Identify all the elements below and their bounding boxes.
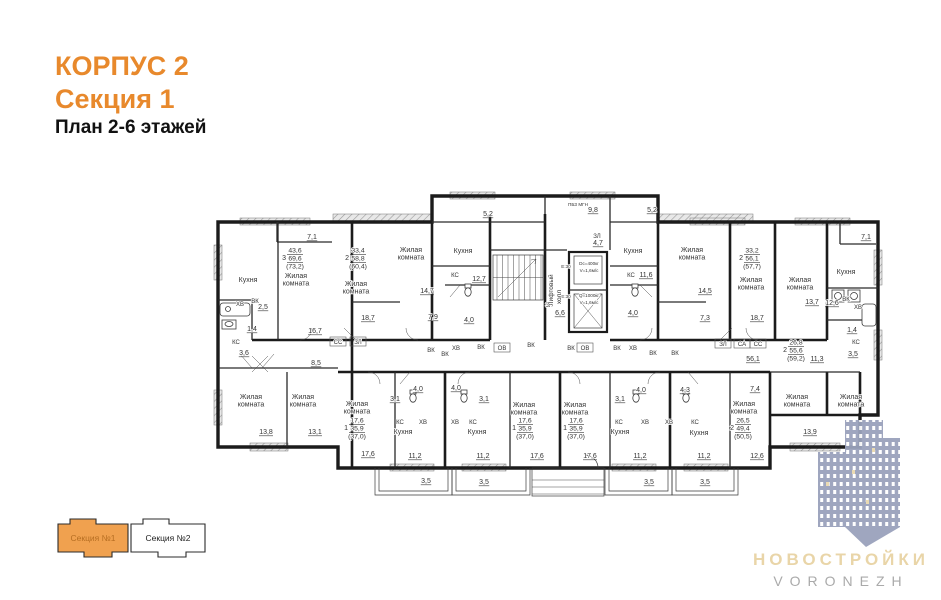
plan-label: 7,4 bbox=[750, 386, 760, 393]
plan-label: V=1,6м/с bbox=[580, 268, 600, 273]
plan-label: 18,7 bbox=[750, 315, 764, 322]
plan-label: 11,2 bbox=[476, 453, 489, 460]
plan-label: Кухня bbox=[624, 248, 643, 255]
plan-label: Кухня bbox=[611, 429, 630, 436]
plan-label: ХВ bbox=[641, 420, 649, 426]
plan-label: КС bbox=[396, 420, 404, 426]
plan-label: 7,9 bbox=[428, 314, 438, 321]
plan-label: 13,1 bbox=[308, 429, 322, 436]
plan-label: 14,7 bbox=[420, 288, 434, 295]
svg-text:(50,5): (50,5) bbox=[734, 434, 752, 441]
legend-section-2[interactable]: Секция №2 bbox=[131, 519, 205, 557]
plan-label: Q=1000кг bbox=[579, 293, 599, 298]
section-title: Секция 1 bbox=[55, 84, 175, 114]
washer-icon bbox=[848, 290, 860, 302]
plan-label: 9,8 bbox=[588, 207, 598, 214]
plan-label: Жилаякомната bbox=[731, 401, 758, 416]
plan-label: 4,7 bbox=[593, 240, 603, 247]
plan-label: ВК bbox=[649, 351, 657, 357]
plan-label: Кухня bbox=[239, 277, 258, 284]
staircase bbox=[493, 255, 543, 300]
plan-label: 11,2 bbox=[697, 453, 710, 460]
plan-label: 11,3 bbox=[810, 356, 823, 363]
logo-subtitle: VORONEZH bbox=[773, 573, 908, 589]
plan-label: 1,4 bbox=[247, 326, 257, 333]
plan-label: 5,2 bbox=[647, 207, 657, 214]
plan-label: 5,2 bbox=[483, 211, 493, 218]
page: КОРПУС 2 Секция 1 План 2-6 этажей bbox=[0, 0, 941, 600]
plan-label: КС bbox=[469, 420, 477, 426]
plan-label: 4,0 bbox=[413, 386, 423, 393]
plan-label: ОВ bbox=[498, 346, 507, 352]
plan-label: ХВ bbox=[629, 346, 637, 352]
svg-text:(37,0): (37,0) bbox=[348, 434, 366, 441]
plan-label: Жилаякомната bbox=[562, 402, 589, 417]
plan-label: ХВ bbox=[665, 420, 673, 426]
plan-label: СС bbox=[754, 342, 763, 348]
building-title: КОРПУС 2 bbox=[55, 51, 189, 81]
plan-label: 6,6 bbox=[555, 310, 565, 317]
svg-text:3: 3 bbox=[282, 255, 286, 262]
plan-label: Жилаякомната bbox=[343, 281, 370, 296]
plan-label: Кухня bbox=[468, 429, 487, 436]
svg-text:17,6: 17,6 bbox=[518, 418, 531, 425]
legend-section-1[interactable]: Секция №1 bbox=[58, 519, 128, 557]
plan-label: ВК bbox=[842, 297, 850, 303]
plan-label: ВК bbox=[441, 352, 449, 358]
plan-label: ХВ bbox=[451, 420, 459, 426]
logo-building-icon bbox=[818, 420, 900, 547]
plan-label: холл bbox=[556, 290, 563, 304]
plan-label: Жилаякомната bbox=[511, 402, 538, 417]
sink-icon bbox=[222, 320, 236, 329]
plan-label: ПБЗ МГН bbox=[568, 202, 588, 207]
plan-label: 14,5 bbox=[698, 288, 712, 295]
plan-label: 2,5 bbox=[258, 304, 268, 311]
plan-label: 4,0 bbox=[464, 317, 474, 324]
plan-label: Лифтовый bbox=[547, 274, 555, 306]
plan-label: 13,9 bbox=[803, 429, 817, 436]
plan-label: Жилаякомната bbox=[344, 401, 371, 416]
plan-label: 3,5 bbox=[479, 479, 489, 486]
plan-label: 13,8 bbox=[259, 429, 273, 436]
svg-text:2: 2 bbox=[345, 255, 349, 262]
toilet-icon bbox=[465, 284, 471, 296]
plan-label: 1,4 bbox=[847, 327, 857, 334]
floor-plan-canvas: КОРПУС 2 Секция 1 План 2-6 этажей bbox=[0, 0, 941, 600]
plan-label: ВК bbox=[527, 343, 535, 349]
plan-label: 12,7 bbox=[472, 276, 486, 283]
plan-label: ВК bbox=[671, 351, 679, 357]
svg-text:17,6: 17,6 bbox=[569, 418, 582, 425]
apartment-spec: 233,458,8(60,4) bbox=[345, 248, 367, 271]
plan-label: Кухня bbox=[394, 429, 413, 436]
svg-text:35,9: 35,9 bbox=[569, 426, 582, 433]
toilet-icon bbox=[461, 390, 467, 402]
plan-label: 3,5 bbox=[421, 478, 431, 485]
svg-text:2: 2 bbox=[730, 425, 734, 432]
plan-label: КС bbox=[451, 273, 459, 279]
svg-text:33,2: 33,2 bbox=[745, 248, 758, 255]
svg-text:(37,0): (37,0) bbox=[567, 434, 585, 441]
plan-label: ВК bbox=[613, 346, 621, 352]
plan-label: 13,7 bbox=[805, 299, 819, 306]
plan-label: Жилаякомната bbox=[787, 277, 814, 292]
entrance-porch bbox=[532, 455, 604, 496]
svg-text:55,6: 55,6 bbox=[789, 348, 802, 355]
plan-label: Е:30 bbox=[561, 264, 571, 269]
toilet-icon bbox=[632, 284, 638, 296]
plan-label: Dс=400кг bbox=[579, 261, 599, 266]
svg-text:35,9: 35,9 bbox=[518, 426, 531, 433]
apartment-spec: 343,669,6(73,2) bbox=[282, 248, 304, 271]
svg-text:58,8: 58,8 bbox=[351, 256, 364, 263]
plan-label: 7,1 bbox=[861, 234, 871, 241]
svg-text:26,8: 26,8 bbox=[789, 340, 802, 347]
plan-label: 4,0 bbox=[636, 387, 646, 394]
plan-label: 11,2 bbox=[408, 453, 421, 460]
plan-label: Жилаякомната bbox=[838, 394, 865, 409]
apartment-spec: 117,635,9(37,0) bbox=[512, 418, 534, 441]
apartment-spec: 233,256,1(57,7) bbox=[739, 248, 761, 271]
plan-label: Жилаякомната bbox=[679, 247, 706, 262]
plan-label: Жилаякомната bbox=[283, 273, 310, 288]
apartment-spec: 117,635,9(37,0) bbox=[563, 418, 585, 441]
svg-text:56,1: 56,1 bbox=[745, 256, 758, 263]
plan-label: 17,6 bbox=[583, 453, 597, 460]
plan-label: ВК bbox=[567, 346, 575, 352]
plan-label: V=1,6м/с bbox=[580, 300, 600, 305]
plan-label: ХВ bbox=[854, 305, 862, 311]
plan-label: ОВ bbox=[581, 346, 590, 352]
plan-label: ЗЛ bbox=[593, 234, 601, 240]
plan-subtitle: План 2-6 этажей bbox=[55, 117, 206, 138]
plan-label: 7,3 bbox=[700, 315, 710, 322]
plan-label: 12,6 bbox=[750, 453, 764, 460]
plan-label: Жилаякомната bbox=[238, 394, 265, 409]
plan-label: 11,2 bbox=[633, 453, 646, 460]
legend: Секция №1 Секция №2 bbox=[58, 519, 205, 557]
title-block: КОРПУС 2 Секция 1 План 2-6 этажей bbox=[55, 51, 206, 138]
plan-label: СС bbox=[334, 340, 343, 346]
plan-label: КС bbox=[627, 273, 635, 279]
plan-label: Кухня bbox=[837, 269, 856, 276]
bathtub-icon bbox=[862, 304, 876, 326]
legend-section-2-label[interactable]: Секция №2 bbox=[145, 533, 190, 543]
plan-label: 56,1 bbox=[746, 356, 760, 363]
plan-label: 4,0 bbox=[628, 310, 638, 317]
plan-label: КС bbox=[232, 340, 240, 346]
plan-label: 3,1 bbox=[390, 396, 400, 403]
plan-label: 3,1 bbox=[479, 396, 489, 403]
plan-label: КС bbox=[615, 420, 623, 426]
plan-label: ВК bbox=[477, 345, 485, 351]
logo-title: НОВОСТРОЙКИ bbox=[753, 550, 929, 569]
svg-text:1: 1 bbox=[512, 425, 516, 432]
plan-label: Жилаякомната bbox=[290, 394, 317, 409]
plan-label: 3,1 bbox=[615, 396, 625, 403]
plan-label: 16,7 bbox=[308, 328, 322, 335]
apartment-spec: 226,855,6(59,2) bbox=[783, 340, 805, 363]
svg-text:2: 2 bbox=[739, 255, 743, 262]
plan-label: 11,6 bbox=[639, 272, 652, 279]
plan-label: ВК bbox=[427, 348, 435, 354]
plan-label: 18,7 bbox=[361, 315, 375, 322]
plan-label: ЗЛ bbox=[354, 340, 362, 346]
plan-label: 12,6 bbox=[825, 300, 839, 307]
svg-text:26,5: 26,5 bbox=[736, 418, 749, 425]
svg-text:17,6: 17,6 bbox=[350, 418, 363, 425]
plan-label: ЗЛ bbox=[719, 342, 727, 348]
svg-text:35,9: 35,9 bbox=[350, 426, 363, 433]
svg-text:49,4: 49,4 bbox=[736, 426, 749, 433]
svg-text:33,4: 33,4 bbox=[351, 248, 364, 255]
svg-text:1: 1 bbox=[344, 425, 348, 432]
plan-label: 3,5 bbox=[700, 479, 710, 486]
plan-label: КС bbox=[852, 340, 860, 346]
plan-label: Жилаякомната bbox=[738, 277, 765, 292]
svg-text:(59,2): (59,2) bbox=[787, 356, 805, 363]
plan-label: СА bbox=[738, 342, 746, 348]
plan-label: 3,5 bbox=[848, 351, 858, 358]
svg-text:69,6: 69,6 bbox=[288, 256, 301, 263]
svg-text:(57,7): (57,7) bbox=[743, 264, 761, 271]
svg-text:2: 2 bbox=[783, 347, 787, 354]
plan-label: 17,6 bbox=[361, 451, 375, 458]
apartment-spec: 117,635,9(37,0) bbox=[344, 418, 366, 441]
plan-label: ВК bbox=[251, 299, 259, 305]
plan-label: 7,1 bbox=[307, 234, 317, 241]
plan-label: 4,0 bbox=[451, 385, 461, 392]
plan-label: 17,6 bbox=[530, 453, 544, 460]
plan-label: ХВ bbox=[452, 346, 460, 352]
svg-text:1: 1 bbox=[563, 425, 567, 432]
plan-label: Жилаякомната bbox=[398, 247, 425, 262]
plan-label: 3,5 bbox=[644, 479, 654, 486]
plan-label: 3,6 bbox=[239, 350, 249, 357]
legend-section-1-label[interactable]: Секция №1 bbox=[70, 533, 115, 543]
plan-label: ХВ bbox=[419, 420, 427, 426]
svg-text:43,6: 43,6 bbox=[288, 248, 301, 255]
plan-label: ХВ bbox=[236, 302, 244, 308]
plan-label: Кухня bbox=[690, 430, 709, 437]
svg-text:(60,4): (60,4) bbox=[349, 264, 367, 271]
plan-label: Кухня bbox=[454, 248, 473, 255]
plan-label: 4,3 bbox=[680, 387, 690, 394]
plan-label: Жилаякомната bbox=[784, 394, 811, 409]
floor-plan: КухняЖилаякомнатаЖилаякомнатаЖилаякомнат… bbox=[214, 192, 882, 496]
svg-text:(73,2): (73,2) bbox=[286, 264, 304, 271]
plan-label: КС bbox=[691, 420, 699, 426]
svg-text:(37,0): (37,0) bbox=[516, 434, 534, 441]
apartment-spec: 226,549,4(50,5) bbox=[730, 418, 752, 441]
plan-label: 8,5 bbox=[311, 360, 321, 367]
